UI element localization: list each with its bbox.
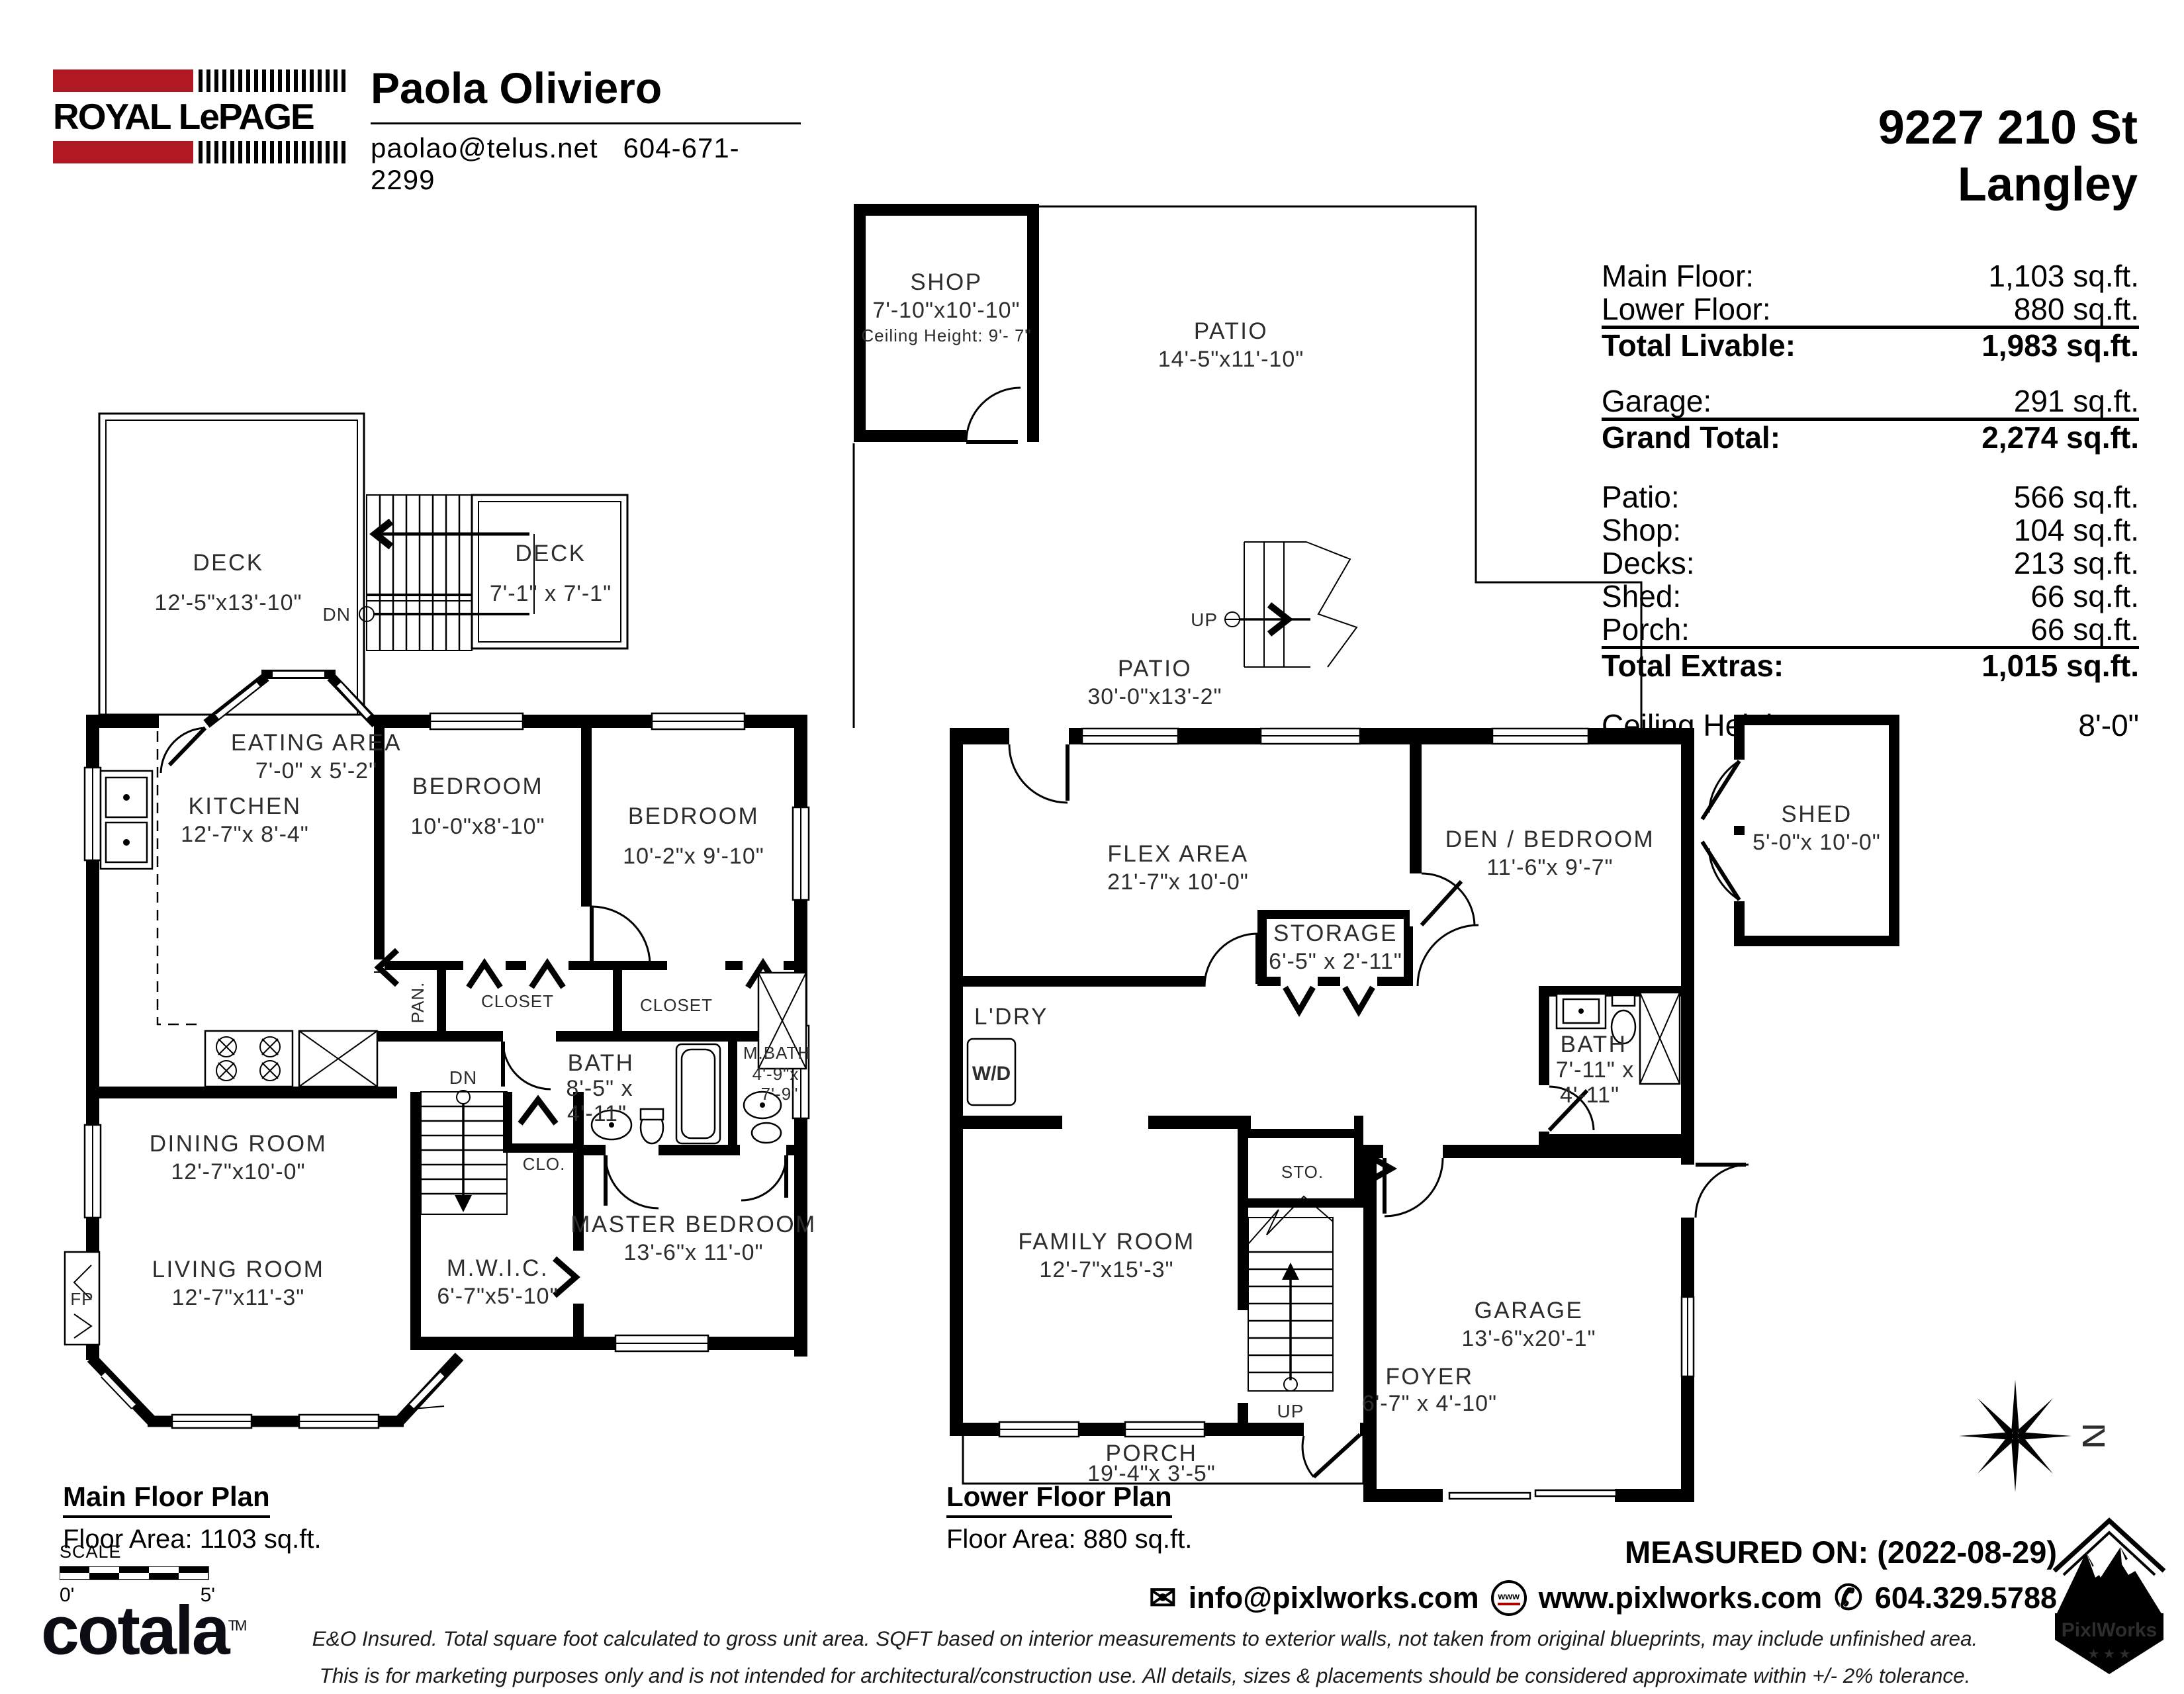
email-icon: ✉ [1149,1583,1177,1613]
svg-text:4'-9"x: 4'-9"x [752,1064,799,1084]
room-label-master: MASTER BEDROOM [570,1212,814,1237]
pixlworks-logo: PixlWorks ★ ★ ★ [2046,1514,2172,1679]
deck-large: DECK 12'-5"x13'-10" [99,414,364,715]
svg-text:6'-7" x 4'-10": 6'-7" x 4'-10" [1362,1391,1497,1416]
lower-floor-title-block: Lower Floor Plan Floor Area: 880 sq.ft. [946,1481,1192,1554]
svg-text:4'-11": 4'-11" [1560,1083,1619,1108]
cotala-tm: TM [228,1617,246,1634]
lower-floor-title: Lower Floor Plan [946,1481,1172,1518]
svg-text:14'-5"x11'-10": 14'-5"x11'-10" [1158,347,1304,372]
room-label-kitchen: KITCHEN [188,793,301,819]
up-marker: UP [1277,1401,1304,1421]
room-label-flex: FLEX AREA [1107,841,1248,867]
lower-floor-area: Floor Area: 880 sq.ft. [946,1525,1192,1554]
svg-text:5'-0"x 10'-0": 5'-0"x 10'-0" [1752,830,1881,855]
room-label: DECK [515,541,586,566]
row-value: 1,983 sq.ft. [1981,329,2139,362]
row-value: 66 sq.ft. [2030,580,2139,613]
svg-text:10'-2"x 9'-10": 10'-2"x 9'-10" [623,844,764,869]
compass-north-label: N [2075,1423,2105,1449]
disclaimer: E&O Insured. Total square foot calculate… [278,1620,2012,1694]
agent-name: Paola Oliviero [371,63,801,124]
patio2-label: PATIO [1118,656,1192,682]
agent-contact: paolao@telus.net 604-671-2299 [371,132,801,196]
up-marker: UP [1191,609,1218,630]
room-dims: 12'-5"x13'-10" [154,590,302,615]
disclaimer-line1: E&O Insured. Total square foot calculate… [278,1620,2012,1657]
room-label-dining: DINING ROOM [150,1131,328,1157]
svg-text:7'-10"x10'-10": 7'-10"x10'-10" [872,298,1020,323]
room-label-bedroom1: BEDROOM [412,774,543,799]
cotala-logo: cotalaTM [41,1596,245,1661]
room-label-living: LIVING ROOM [152,1257,325,1282]
room-label-clo: CLO. [523,1154,566,1174]
row-value: 8'-0" [2078,709,2139,742]
row-value: 104 sq.ft. [2014,513,2139,547]
contact-web: www.pixlworks.com [1539,1581,1822,1615]
row-value: 291 sq.ft. [2014,384,2139,418]
svg-text:10'-0"x8'-10": 10'-0"x8'-10" [410,814,545,839]
lower-stairs-up: UP [1248,1196,1333,1421]
room-labels: EATING AREA 7'-0" x 5'-2" KITCHEN 12'-7"… [150,730,814,1310]
room-label-bedroom2: BEDROOM [628,803,759,829]
compass-icon: N [1952,1376,2105,1495]
svg-text:W/D: W/D [972,1063,1011,1085]
logo-bar-top [53,69,347,92]
dn-marker: DN [449,1067,477,1088]
svg-text:Ceiling Height: 9'- 7": Ceiling Height: 9'- 7" [861,326,1031,345]
room-label-mbath: M.BATH [743,1043,811,1063]
svg-text:21'-7"x 10'-0": 21'-7"x 10'-0" [1107,869,1249,895]
room-dims: 7'-1" x 7'-1" [490,581,612,606]
svg-text:6'-7"x5'-10": 6'-7"x5'-10" [437,1284,558,1309]
room-label-garage: GARAGE [1475,1298,1584,1323]
room-label-den: DEN / BEDROOM [1445,826,1655,852]
patio1-label: PATIO [1194,318,1268,344]
royal-lepage-logo: ROYAL LePAGE [53,69,347,163]
svg-text:6'-5" x 2'-11": 6'-5" x 2'-11" [1269,949,1402,974]
shop: SHOP 7'-10"x10'-10" Ceiling Height: 9'- … [854,204,1039,442]
svg-text:12'-7"x10'-0": 12'-7"x10'-0" [171,1159,305,1184]
row-value: 66 sq.ft. [2030,613,2139,646]
globe-underline [1498,1603,1520,1605]
main-floor-plan: DECK 12'-5"x13'-10" DN DECK 7'-1" x 7'-1… [40,397,814,1456]
room-label-bath: BATH [1561,1032,1627,1057]
room-label-family: FAMILY ROOM [1018,1229,1195,1255]
dn-marker: DN [323,604,351,625]
svg-text:12'-7"x 8'-4": 12'-7"x 8'-4" [181,822,309,847]
room-label-foyer: FOYER [1385,1364,1473,1390]
disclaimer-line2: This is for marketing purposes only and … [278,1657,2012,1694]
kitchen-fixtures [101,731,377,1087]
row-value: 1,015 sq.ft. [1981,649,2139,682]
row-value: 213 sq.ft. [2014,547,2139,580]
room-label-mwic: M.W.I.C. [447,1255,549,1281]
globe-icon: www [1491,1580,1527,1616]
pixlworks-stars: ★ ★ ★ [2088,1647,2131,1662]
contact-row: ✉ info@pixlworks.com www www.pixlworks.c… [1149,1580,2057,1616]
patio-stairs-up: UP [1191,542,1357,667]
logo-bar-bottom [53,141,347,163]
room-label: SHOP [910,269,982,295]
main-stairs-down: DN [421,1067,507,1214]
phone-icon: ✆ [1834,1583,1863,1613]
svg-text:8'-5" x: 8'-5" x [566,1076,633,1101]
svg-text:7'-11" x: 7'-11" x [1556,1057,1635,1083]
room-label-eating: EATING AREA [231,730,402,756]
svg-text:12'-7"x11'-3": 12'-7"x11'-3" [172,1285,305,1310]
logo-hatch-stripes [199,141,347,163]
deck-small: DECK 7'-1" x 7'-1" [472,495,627,648]
row-value: 1,103 sq.ft. [1988,259,2139,292]
measured-on: MEASURED ON: (2022-08-29) [1263,1534,2057,1570]
room-label-pantry: PAN. [408,982,428,1024]
room-label: DECK [193,550,263,576]
svg-text:13'-6"x 11'-0": 13'-6"x 11'-0" [623,1240,763,1265]
scale-label: SCALE [60,1542,215,1562]
svg-text:7'-0" x 5'-2": 7'-0" x 5'-2" [255,758,377,783]
fireplace: FP [65,1252,99,1345]
room-label-closet1: CLOSET [481,991,554,1011]
brand-name: ROYAL LePAGE [53,92,347,141]
contact-phone: 604.329.5788 [1875,1581,2057,1615]
main-floor-title: Main Floor Plan [63,1481,270,1518]
logo-red-bar [53,141,193,163]
agent-block: Paola Oliviero paolao@telus.net 604-671-… [371,63,801,196]
row-value: 566 sq.ft. [2014,480,2139,513]
svg-text:11'-6"x 9'-7": 11'-6"x 9'-7" [1486,855,1613,880]
address-line1: 9227 210 St [1608,99,2138,156]
room-label: FP [70,1289,93,1309]
room-label-ldry: L'DRY [974,1004,1048,1030]
logo-red-bar [53,69,193,92]
shed: SHED 5'-0"x 10'-0" [1702,715,1899,946]
room-label-closet2: CLOSET [640,995,713,1015]
svg-text:12'-7"x15'-3": 12'-7"x15'-3" [1039,1257,1173,1282]
room-label: SHED [1781,801,1852,827]
lower-floor-plan: SHOP 7'-10"x10'-10" Ceiling Height: 9'- … [847,185,1906,1582]
pixlworks-wordmark: PixlWorks [2062,1619,2158,1641]
agent-email: paolao@telus.net [371,132,598,163]
row-value: 2,274 sq.ft. [1981,421,2139,454]
room-label-bath: BATH [568,1050,635,1076]
svg-text:7'-9": 7'-9" [761,1084,799,1104]
contact-email: info@pixlworks.com [1189,1581,1479,1615]
svg-text:13'-6"x20'-1": 13'-6"x20'-1" [1461,1326,1596,1351]
svg-text:30'-0"x13'-2": 30'-0"x13'-2" [1087,684,1222,709]
svg-text:4'-11": 4'-11" [567,1101,627,1126]
laundry: L'DRY W/D [968,1004,1048,1105]
room-label-sto: STO. [1281,1162,1324,1182]
floor-plan-sheet: { "header": { "brand": { "name": "ROYAL … [0,0,2184,1687]
logo-hatch-stripes [199,69,347,92]
scale-bar [60,1566,212,1581]
row-value: 880 sq.ft. [2014,292,2139,326]
room-label-storage: STORAGE [1273,920,1398,946]
